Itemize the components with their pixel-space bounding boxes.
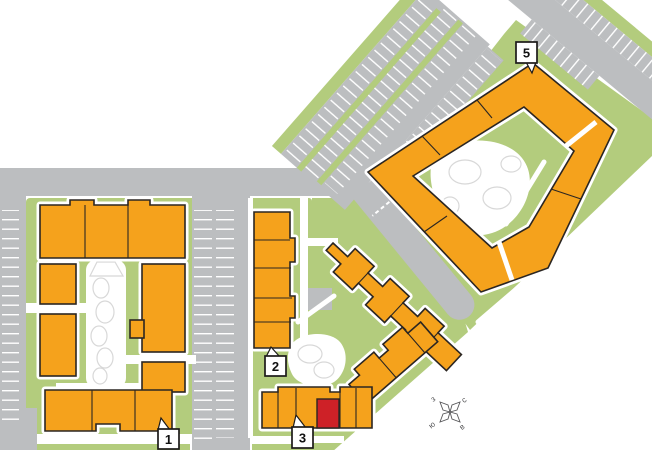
building-3[interactable] — [262, 387, 372, 428]
building-1-marker-label: 1 — [165, 432, 172, 447]
site-plan-map: 1 2 3 5 з с ю в — [0, 0, 652, 450]
highlighted-unit[interactable] — [317, 399, 339, 428]
building-3-marker-label: 3 — [299, 431, 306, 446]
building-2[interactable] — [254, 212, 295, 348]
site-plan-page: 1 2 3 5 з с ю в — [0, 0, 652, 450]
compass-arm-west — [440, 402, 450, 412]
compass-arm-south — [440, 412, 450, 422]
compass-arm-north — [450, 402, 460, 412]
building-2-marker-label: 2 — [272, 359, 279, 374]
compass-arm-east — [450, 412, 460, 422]
compass-east-label: в — [458, 422, 467, 432]
building-5-marker-label: 5 — [523, 46, 530, 61]
compass-west-label: з — [429, 394, 438, 404]
compass-rose: з с ю в — [427, 394, 468, 432]
compass-north-label: с — [460, 395, 469, 405]
courtyard-1-playground — [86, 260, 126, 388]
compass-south-label: ю — [427, 420, 437, 431]
